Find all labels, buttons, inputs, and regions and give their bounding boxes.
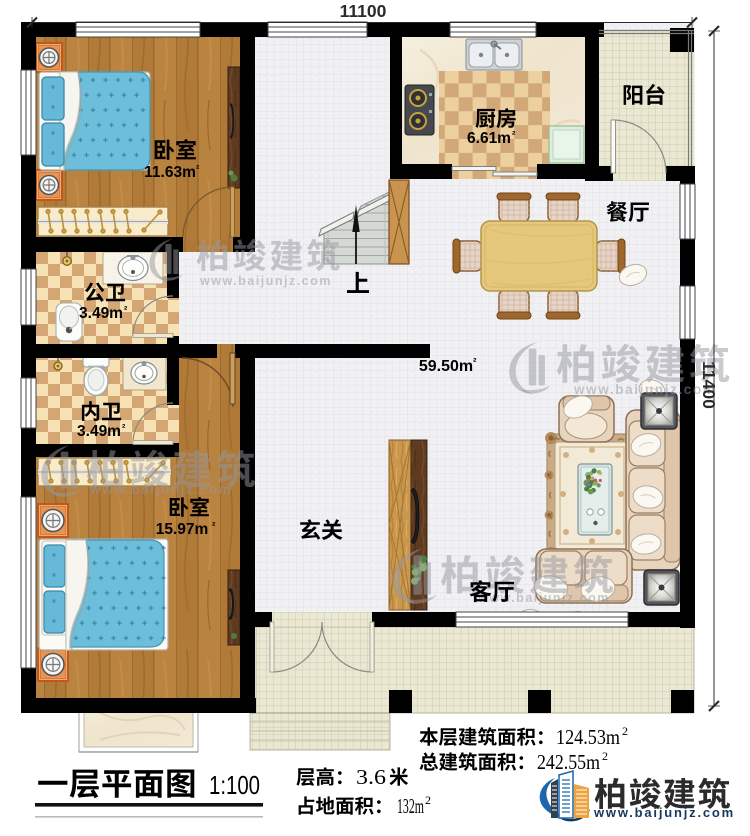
svg-text:www.baijunjz.com: www.baijunjz.com bbox=[573, 382, 716, 397]
svg-text:132m: 132m bbox=[397, 794, 424, 818]
svg-text:www.baijunjz.com: www.baijunjz.com bbox=[89, 482, 232, 497]
svg-text:2: 2 bbox=[425, 793, 431, 807]
svg-text:11.63m: 11.63m bbox=[144, 164, 196, 181]
svg-text:124.53m: 124.53m bbox=[556, 725, 620, 749]
svg-text:²: ² bbox=[473, 356, 477, 368]
svg-text:3.6: 3.6 bbox=[356, 765, 386, 789]
svg-text:3.49m: 3.49m bbox=[79, 305, 123, 322]
svg-text:11400: 11400 bbox=[699, 361, 719, 409]
svg-text:www.baijunjz.com: www.baijunjz.com bbox=[593, 805, 735, 820]
svg-text:2: 2 bbox=[602, 749, 608, 763]
svg-text:59.50m: 59.50m bbox=[419, 358, 473, 375]
svg-text:242.55m: 242.55m bbox=[537, 750, 600, 774]
svg-text:11100: 11100 bbox=[340, 1, 387, 21]
svg-text:6.61m: 6.61m bbox=[467, 130, 511, 147]
svg-text:3.49m: 3.49m bbox=[77, 423, 121, 440]
svg-text:www.baijunjz.com: www.baijunjz.com bbox=[199, 274, 332, 288]
svg-text:2: 2 bbox=[622, 724, 628, 738]
svg-text:15.97m: 15.97m bbox=[156, 521, 209, 538]
svg-text:1:100: 1:100 bbox=[209, 770, 260, 800]
